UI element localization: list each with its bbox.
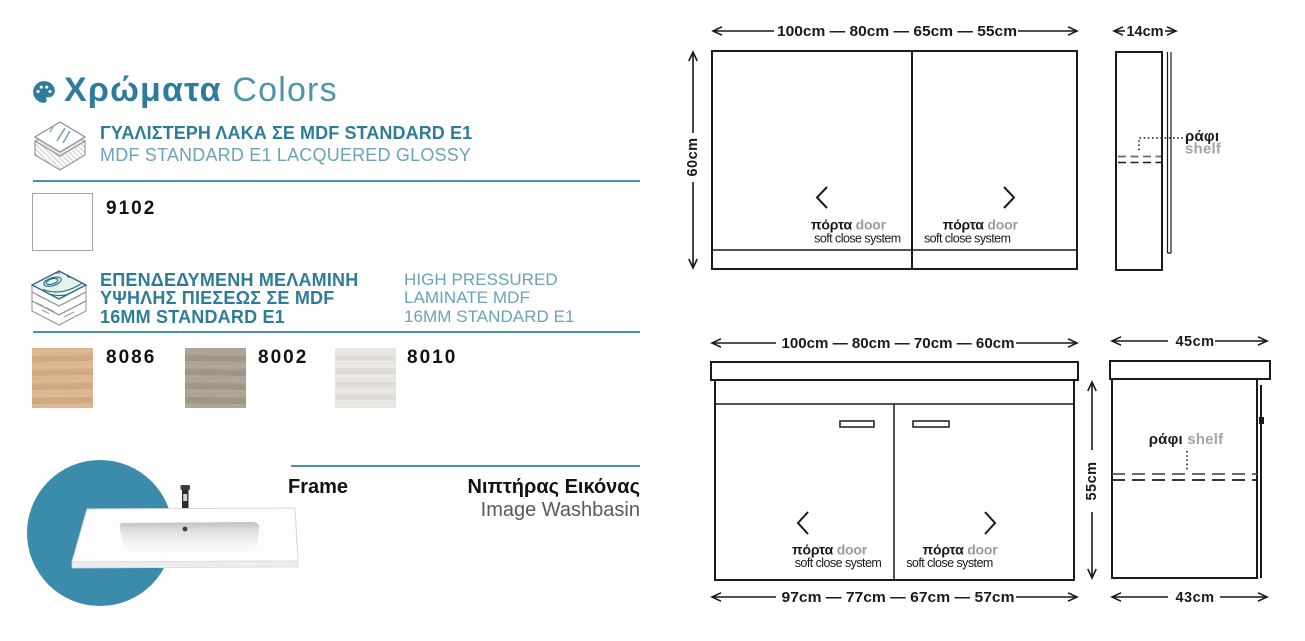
svg-text:soft close system: soft close system <box>906 556 993 570</box>
svg-text:soft close system: soft close system <box>814 232 901 246</box>
svg-text:shelf: shelf <box>1185 141 1222 158</box>
svg-text:14cm: 14cm <box>1127 24 1164 40</box>
svg-text:100cm — 80cm — 65cm — 55cm: 100cm — 80cm — 65cm — 55cm <box>777 24 1017 40</box>
svg-text:πόρτα door: πόρτα door <box>811 217 887 233</box>
svg-text:45cm: 45cm <box>1175 334 1214 350</box>
svg-text:πόρτα door: πόρτα door <box>943 217 1019 233</box>
svg-text:97cm — 77cm — 67cm — 57cm: 97cm — 77cm — 67cm — 57cm <box>782 590 1015 606</box>
svg-text:ράφι shelf: ράφι shelf <box>1149 431 1224 448</box>
svg-text:60cm: 60cm <box>685 137 701 176</box>
svg-text:43cm: 43cm <box>1175 590 1214 606</box>
svg-text:soft close system: soft close system <box>924 232 1011 246</box>
svg-text:100cm — 80cm — 70cm — 60cm: 100cm — 80cm — 70cm — 60cm <box>782 336 1015 352</box>
svg-text:soft close system: soft close system <box>795 556 882 570</box>
svg-text:55cm: 55cm <box>1084 461 1100 500</box>
